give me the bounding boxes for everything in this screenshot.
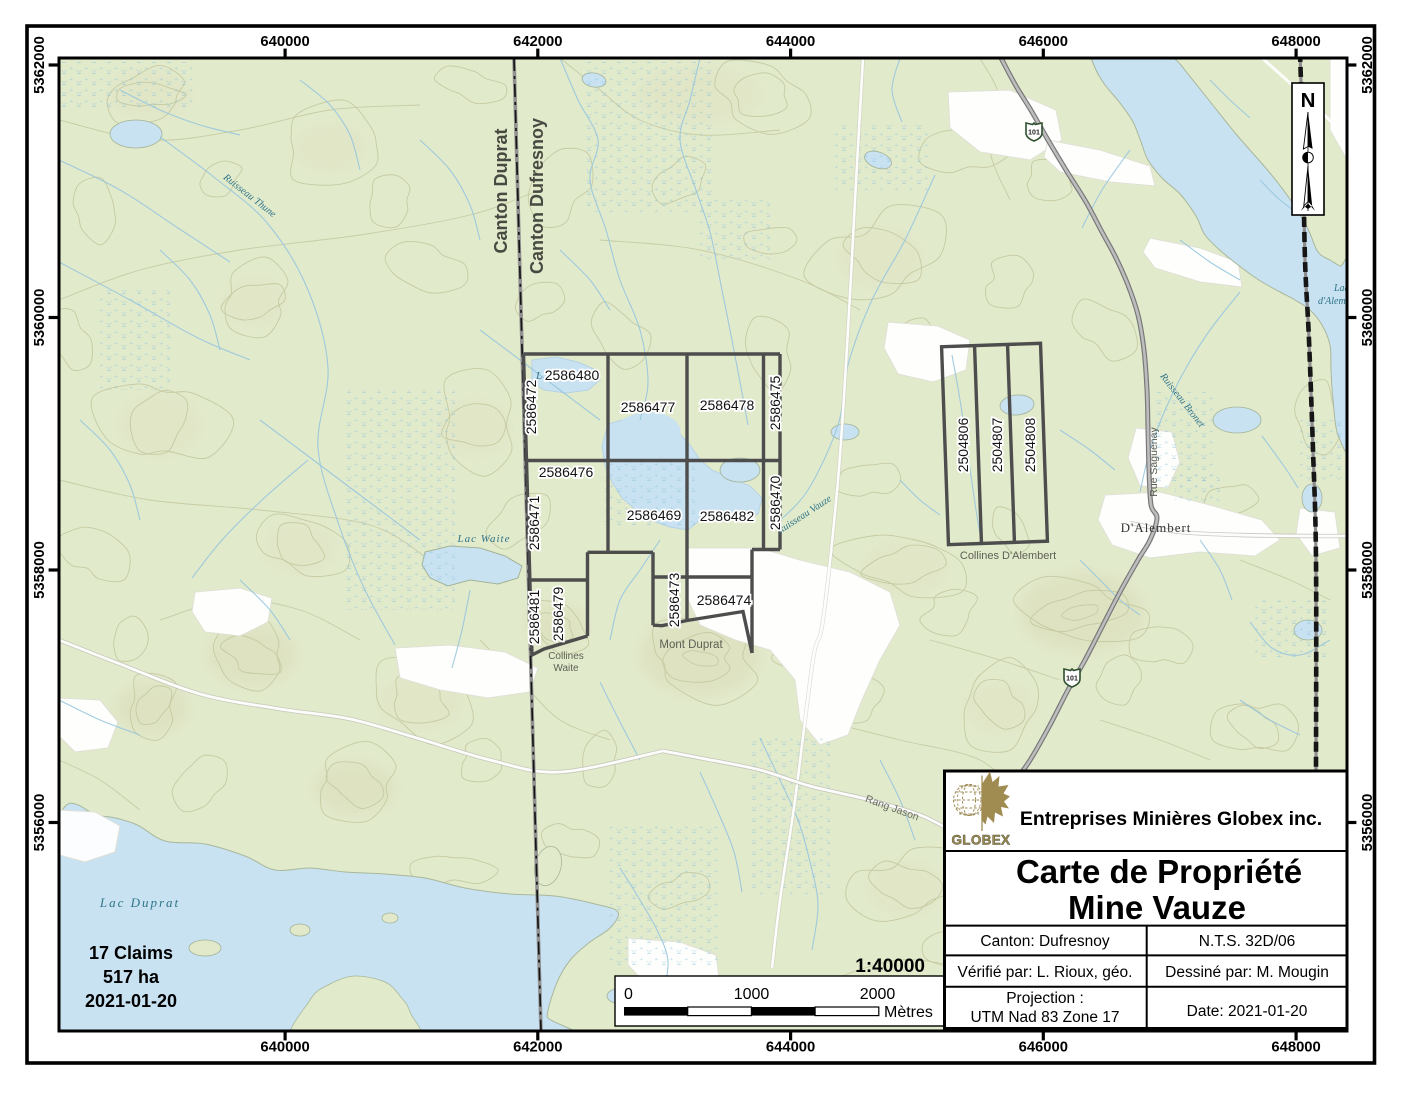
svg-text:1:40000: 1:40000 (855, 956, 925, 977)
svg-text:5358000: 5358000 (1360, 541, 1376, 599)
svg-text:648000: 648000 (1271, 34, 1320, 50)
svg-text:Entreprises Minières Globex in: Entreprises Minières Globex inc. (1020, 808, 1322, 830)
svg-text:2586473: 2586473 (666, 573, 682, 628)
svg-text:UTM Nad 83 Zone 17: UTM Nad 83 Zone 17 (970, 1009, 1119, 1026)
svg-text:Canton Duprat: Canton Duprat (491, 129, 511, 254)
svg-text:642000: 642000 (513, 34, 562, 50)
svg-text:101: 101 (1028, 130, 1040, 137)
svg-text:Mètres: Mètres (884, 1004, 933, 1021)
svg-text:N.T.S. 32D/06: N.T.S. 32D/06 (1199, 933, 1296, 950)
svg-text:2586469: 2586469 (627, 507, 682, 523)
svg-text:Collines D'Alembert: Collines D'Alembert (960, 550, 1056, 562)
svg-text:648000: 648000 (1271, 1040, 1320, 1056)
svg-text:GLOBEX: GLOBEX (952, 833, 1011, 848)
svg-text:2021-01-20: 2021-01-20 (85, 991, 177, 1011)
svg-text:Collines: Collines (548, 651, 584, 662)
svg-text:517 ha: 517 ha (103, 967, 160, 987)
svg-text:Date: 2021-01-20: Date: 2021-01-20 (1187, 1003, 1308, 1020)
svg-text:Mont Duprat: Mont Duprat (659, 639, 723, 651)
svg-text:5360000: 5360000 (1360, 289, 1376, 347)
svg-text:101: 101 (1066, 676, 1078, 683)
svg-text:642000: 642000 (513, 1040, 562, 1056)
svg-text:2586481: 2586481 (526, 590, 542, 645)
svg-text:2586480: 2586480 (545, 367, 600, 383)
svg-text:5358000: 5358000 (32, 541, 48, 599)
svg-text:17 Claims: 17 Claims (89, 943, 173, 963)
svg-text:2586475: 2586475 (767, 376, 783, 431)
svg-text:2586478: 2586478 (700, 397, 755, 413)
svg-text:0: 0 (624, 986, 633, 1003)
svg-text:Carte de Propriété: Carte de Propriété (1016, 853, 1302, 890)
svg-text:N: N (1301, 89, 1316, 112)
svg-text:Waite: Waite (553, 663, 579, 674)
svg-text:2586477: 2586477 (621, 399, 676, 415)
svg-text:2586471: 2586471 (526, 496, 542, 551)
svg-text:Canton: Dufresnoy: Canton: Dufresnoy (980, 933, 1109, 950)
svg-text:Mine Vauze: Mine Vauze (1068, 889, 1246, 926)
svg-text:5360000: 5360000 (32, 289, 48, 347)
svg-text:640000: 640000 (260, 1040, 309, 1056)
svg-text:Vérifié par: L. Rioux, géo.: Vérifié par: L. Rioux, géo. (958, 964, 1133, 981)
svg-text:646000: 646000 (1019, 34, 1068, 50)
svg-text:2504808: 2504808 (1022, 418, 1038, 473)
svg-text:2586479: 2586479 (550, 587, 566, 642)
svg-text:5362000: 5362000 (1360, 36, 1376, 94)
svg-text:Dessiné par: M. Mougin: Dessiné par: M. Mougin (1165, 964, 1329, 981)
svg-text:646000: 646000 (1019, 1040, 1068, 1056)
svg-text:Lac Duprat: Lac Duprat (99, 895, 180, 910)
svg-text:2000: 2000 (860, 986, 896, 1003)
svg-text:2504806: 2504806 (955, 418, 971, 473)
svg-text:Projection :: Projection : (1006, 990, 1084, 1007)
svg-text:D'Alembert: D'Alembert (1121, 520, 1192, 535)
svg-text:5356000: 5356000 (32, 794, 48, 852)
svg-text:644000: 644000 (766, 1040, 815, 1056)
svg-text:2586474: 2586474 (697, 592, 752, 608)
svg-text:2586470: 2586470 (767, 476, 783, 531)
svg-text:L: L (535, 370, 542, 382)
svg-text:Rue Saguenay: Rue Saguenay (1148, 427, 1160, 497)
svg-text:2586476: 2586476 (539, 464, 594, 480)
svg-text:1000: 1000 (734, 986, 770, 1003)
svg-text:2586482: 2586482 (700, 508, 755, 524)
svg-text:2504807: 2504807 (989, 418, 1005, 473)
svg-text:5356000: 5356000 (1360, 794, 1376, 852)
svg-text:5362000: 5362000 (32, 36, 48, 94)
svg-text:2586472: 2586472 (523, 380, 539, 435)
svg-text:640000: 640000 (260, 34, 309, 50)
svg-text:Canton Dufresnoy: Canton Dufresnoy (527, 118, 547, 274)
svg-text:644000: 644000 (766, 34, 815, 50)
svg-text:Lac Waite: Lac Waite (457, 533, 511, 545)
